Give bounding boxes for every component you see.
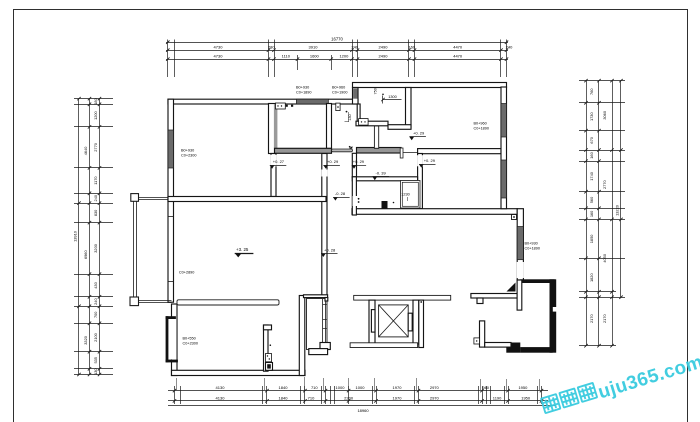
svg-text:3320: 3320	[83, 335, 88, 344]
svg-text:4640: 4640	[83, 146, 88, 155]
svg-text:C0+2890: C0+2890	[179, 270, 195, 274]
svg-text:2970: 2970	[430, 385, 440, 390]
svg-text:4130: 4130	[216, 395, 226, 400]
svg-text:1300: 1300	[388, 95, 396, 99]
svg-text:2200: 2200	[344, 395, 354, 400]
svg-text:160: 160	[589, 210, 594, 217]
svg-text:+0. 29: +0. 29	[413, 131, 425, 136]
svg-text:4470: 4470	[453, 44, 463, 49]
svg-text:280: 280	[268, 44, 275, 49]
svg-text:+0. 29: +0. 29	[327, 159, 339, 164]
svg-text:830: 830	[93, 209, 98, 216]
svg-text:+0. 27: +0. 27	[273, 159, 285, 164]
svg-text:560: 560	[589, 196, 594, 203]
svg-text:C0+1890: C0+1890	[525, 246, 541, 250]
svg-text:-0. 39: -0. 39	[376, 170, 387, 175]
svg-text:1230: 1230	[401, 192, 409, 196]
svg-text:C0+1890: C0+1890	[296, 90, 312, 94]
svg-text:1950: 1950	[518, 385, 528, 390]
svg-text:130: 130	[93, 368, 98, 375]
svg-text:4470: 4470	[453, 53, 463, 58]
svg-text:18960: 18960	[357, 408, 369, 413]
svg-text:1840: 1840	[279, 395, 289, 400]
svg-text:1950: 1950	[521, 395, 531, 400]
svg-text:240: 240	[93, 298, 98, 305]
svg-text:B0+930: B0+930	[296, 86, 309, 90]
svg-text:C0+2300: C0+2300	[181, 153, 197, 157]
svg-text:535: 535	[93, 357, 98, 364]
svg-text:710: 710	[311, 385, 318, 390]
svg-text:1000: 1000	[336, 385, 346, 390]
svg-text:4730: 4730	[214, 44, 224, 49]
svg-text:B0+550: B0+550	[183, 337, 196, 341]
svg-text:1730: 1730	[589, 112, 594, 121]
svg-text:1970: 1970	[393, 395, 403, 400]
svg-text:4730: 4730	[214, 53, 224, 58]
svg-text:430: 430	[93, 281, 98, 288]
svg-text:1740: 1740	[589, 171, 594, 180]
svg-text:240: 240	[93, 194, 98, 201]
svg-text:160: 160	[589, 151, 594, 158]
svg-text:1600: 1600	[310, 53, 320, 58]
svg-text:130: 130	[348, 114, 352, 120]
svg-text:2490: 2490	[379, 44, 389, 49]
svg-text:C0+1890: C0+1890	[474, 126, 490, 130]
svg-text:16770: 16770	[331, 36, 343, 41]
svg-text:1970: 1970	[393, 385, 403, 390]
svg-text:3060: 3060	[602, 110, 607, 119]
svg-text:180: 180	[93, 97, 98, 104]
svg-text:760: 760	[589, 88, 594, 95]
svg-text:+0. 28: +0. 28	[324, 247, 336, 252]
svg-text:+3. 25: +3. 25	[236, 247, 249, 252]
svg-text:2770: 2770	[93, 142, 98, 151]
svg-text:13220: 13220	[615, 204, 620, 216]
svg-text:+0. 29: +0. 29	[424, 158, 436, 163]
svg-text:1840: 1840	[279, 385, 289, 390]
svg-text:1200: 1200	[339, 53, 349, 58]
svg-text:980: 980	[482, 385, 489, 390]
svg-text:2170: 2170	[602, 314, 607, 323]
svg-text:1850: 1850	[589, 234, 594, 243]
svg-text:3910: 3910	[309, 44, 319, 49]
svg-text:B0+930: B0+930	[525, 242, 538, 246]
svg-text:1000: 1000	[356, 385, 366, 390]
svg-text:13910: 13910	[73, 230, 78, 242]
svg-text:700: 700	[93, 311, 98, 318]
svg-text:1200: 1200	[93, 110, 98, 119]
svg-text:750: 750	[374, 88, 378, 94]
svg-text:2170: 2170	[589, 314, 594, 323]
svg-text:240: 240	[351, 44, 358, 49]
svg-text:C0+2300: C0+2300	[183, 341, 199, 345]
svg-text:B0+930: B0+930	[181, 149, 194, 153]
svg-text:-0. 28: -0. 28	[335, 191, 346, 196]
svg-text:C0+1900: C0+1900	[332, 90, 348, 94]
svg-text:2490: 2490	[379, 53, 389, 58]
svg-text:3200: 3200	[93, 243, 98, 252]
svg-text:B0+960: B0+960	[474, 122, 487, 126]
svg-text:1190: 1190	[493, 395, 502, 400]
svg-text:1110: 1110	[282, 53, 291, 58]
svg-text:240: 240	[506, 44, 513, 49]
svg-text:1820: 1820	[589, 273, 594, 282]
svg-text:6960: 6960	[83, 250, 88, 259]
svg-text:2970: 2970	[430, 395, 440, 400]
svg-text:+0. 29: +0. 29	[353, 159, 365, 164]
svg-text:1170: 1170	[93, 176, 98, 185]
svg-text:710: 710	[308, 395, 315, 400]
svg-text:4130: 4130	[216, 385, 226, 390]
svg-text:2100: 2100	[93, 332, 98, 341]
svg-text:4050: 4050	[602, 253, 607, 262]
svg-text:670: 670	[589, 136, 594, 143]
svg-text:160: 160	[408, 44, 415, 49]
svg-text:2770: 2770	[602, 180, 607, 189]
svg-text:B0+960: B0+960	[332, 86, 345, 90]
